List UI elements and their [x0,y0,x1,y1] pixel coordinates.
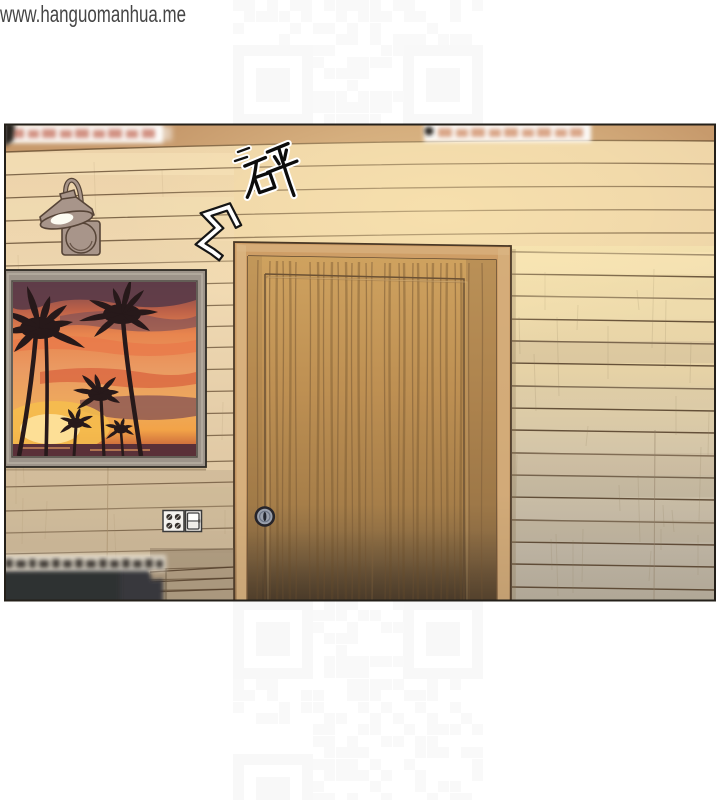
svg-text:www.hanguomanhua.me: www.hanguomanhua.me [0,3,186,28]
